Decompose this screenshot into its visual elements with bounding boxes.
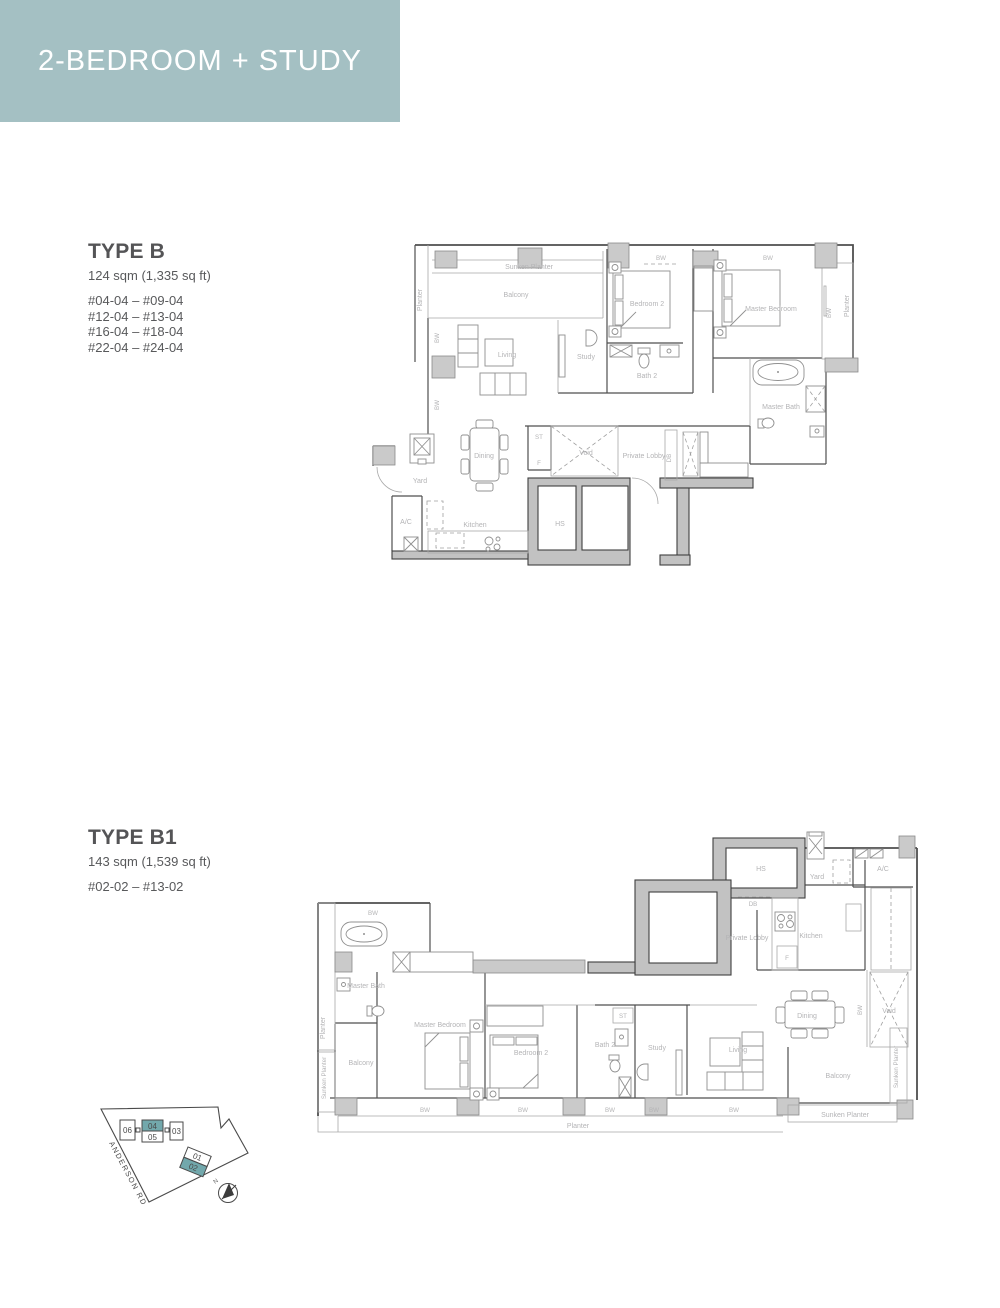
label-bath2: Bath 2 xyxy=(637,373,657,380)
road-label: ANDERSON RD xyxy=(107,1140,149,1208)
type-b-unit-range: #04-04 – #09-04 xyxy=(88,293,211,309)
type-b-area: 124 sqm (1,335 sq ft) xyxy=(88,268,211,283)
label-living: Living xyxy=(729,1047,747,1054)
key-unit-06-label: 06 xyxy=(123,1126,132,1135)
label-study: Study xyxy=(648,1045,666,1052)
label-living: Living xyxy=(498,352,516,359)
key-plan-units: 01 02 06 04 05 03 xyxy=(120,1120,211,1177)
key-unit-03-label: 03 xyxy=(172,1127,181,1136)
label-bw: BW xyxy=(368,910,378,917)
key-plan: 01 02 06 04 05 03 ANDERSON RD N xyxy=(95,1095,275,1220)
label-st: ST xyxy=(535,434,543,441)
label-planter: Planter xyxy=(567,1123,590,1130)
label-balcony: Balcony xyxy=(349,1060,374,1067)
type-b1-units: #02-02 – #13-02 xyxy=(88,879,211,895)
type-b1-floorplan: BW Planter Sunken Planter Balcony Master… xyxy=(305,820,945,1150)
label-void: Void xyxy=(882,1008,896,1015)
label-bedroom2: Bedroom 2 xyxy=(630,301,664,308)
label-master-bath: Master Bath xyxy=(347,983,385,990)
label-balcony: Balcony xyxy=(826,1073,851,1080)
label-ac: A/C xyxy=(877,866,889,873)
label-sunken-planter: Sunken Planter xyxy=(505,264,554,271)
label-sunken-planter: Sunken Planter xyxy=(893,1046,900,1088)
label-bw: BW xyxy=(434,400,441,410)
type-b-unit-range: #22-04 – #24-04 xyxy=(88,340,211,356)
label-bw: BW xyxy=(434,333,441,343)
north-label: N xyxy=(213,1178,220,1185)
label-bath2: Bath 2 xyxy=(595,1042,615,1049)
label-balcony: Balcony xyxy=(504,292,529,299)
label-bw: BW xyxy=(649,1107,659,1114)
label-hs: HS xyxy=(555,521,565,528)
label-dining: Dining xyxy=(474,453,494,460)
type-b1-name: TYPE B1 xyxy=(88,826,211,850)
label-yard: Yard xyxy=(810,874,824,881)
plan-b1-walls xyxy=(318,848,917,1132)
north-compass-icon: N xyxy=(213,1178,238,1202)
type-b-floorplan: Sunken Planter Balcony Planter BW BW BW … xyxy=(370,238,870,573)
type-b1-info: TYPE B1 143 sqm (1,539 sq ft) #02-02 – #… xyxy=(88,826,211,895)
label-bw: BW xyxy=(763,255,773,262)
key-unit-04-label: 04 xyxy=(148,1122,157,1131)
label-dining: Dining xyxy=(797,1013,817,1020)
label-master-bath: Master Bath xyxy=(762,404,800,411)
key-unit-05-label: 05 xyxy=(148,1133,157,1142)
label-bw: BW xyxy=(826,308,833,318)
label-db: DB xyxy=(666,454,673,463)
label-hs: HS xyxy=(756,866,766,873)
label-f: F xyxy=(537,460,541,467)
page-title: 2-BEDROOM + STUDY xyxy=(38,45,362,78)
label-kitchen: Kitchen xyxy=(799,933,822,940)
type-b-units: #04-04 – #09-04 #12-04 – #13-04 #16-04 –… xyxy=(88,293,211,355)
type-b-info: TYPE B 124 sqm (1,335 sq ft) #04-04 – #0… xyxy=(88,240,211,355)
plan-b1-void xyxy=(870,888,911,1047)
label-bw: BW xyxy=(857,1005,864,1015)
label-private-lobby: Private Lobby xyxy=(623,453,666,460)
label-bw: BW xyxy=(605,1107,615,1114)
label-planter: Planter xyxy=(844,294,851,317)
plan-b1-core-walls xyxy=(588,838,805,975)
label-st: ST xyxy=(619,1013,627,1020)
label-bw: BW xyxy=(420,1107,430,1114)
header-band: 2-BEDROOM + STUDY xyxy=(0,0,400,122)
label-yard: Yard xyxy=(413,478,427,485)
label-master-bedroom: Master Bedroom xyxy=(745,306,797,313)
type-b-unit-range: #16-04 – #18-04 xyxy=(88,324,211,340)
label-study: Study xyxy=(577,354,595,361)
label-planter: Planter xyxy=(417,288,424,311)
label-planter: Planter xyxy=(320,1016,327,1039)
label-bw: BW xyxy=(518,1107,528,1114)
label-sunken-planter: Sunken Planter xyxy=(321,1057,328,1099)
plan-b-core-walls xyxy=(392,478,753,565)
label-bedroom2: Bedroom 2 xyxy=(514,1050,548,1057)
type-b1-unit-range: #02-02 – #13-02 xyxy=(88,879,211,895)
label-db: DB xyxy=(749,901,758,908)
label-f: F xyxy=(785,955,789,962)
type-b-unit-range: #12-04 – #13-04 xyxy=(88,309,211,325)
label-bw: BW xyxy=(656,255,666,262)
label-private-lobby: Private Lobby xyxy=(726,935,769,942)
label-master-bedroom: Master Bedroom xyxy=(414,1022,466,1029)
type-b-name: TYPE B xyxy=(88,240,211,264)
label-bw: BW xyxy=(729,1107,739,1114)
label-void: Void xyxy=(579,450,593,457)
key-connector xyxy=(136,1128,140,1132)
key-connector xyxy=(165,1128,169,1132)
type-b1-area: 143 sqm (1,539 sq ft) xyxy=(88,854,211,869)
label-kitchen: Kitchen xyxy=(463,522,486,529)
label-sunken-planter: Sunken Planter xyxy=(821,1112,870,1119)
label-ac: A/C xyxy=(400,519,412,526)
